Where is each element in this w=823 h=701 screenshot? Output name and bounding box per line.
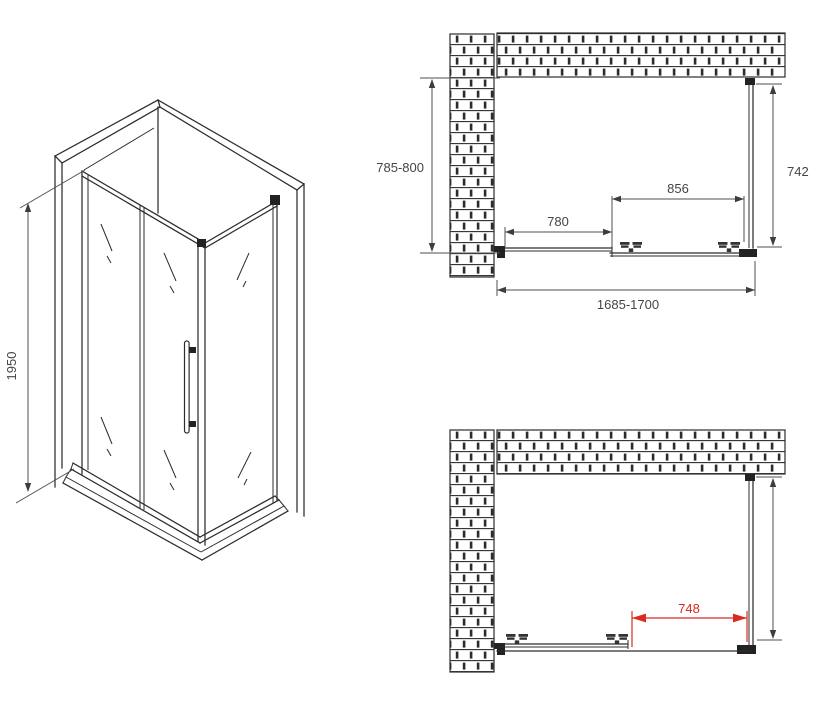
dimension-height-1950: 1950 [4, 170, 85, 503]
wall-bracket [494, 246, 505, 252]
side-panel-dimension-label: 742 [787, 164, 809, 179]
opening-dimension-label: 748 [678, 601, 700, 616]
door-track-closed [494, 242, 742, 258]
brick-wall-left [450, 34, 494, 277]
brick-wall-top [497, 430, 785, 474]
side-glass-panel [739, 78, 757, 257]
depth-dimension-label: 785-800 [376, 160, 424, 175]
handle-bracket-bottom [189, 421, 196, 427]
roller-assembly-left [620, 242, 642, 252]
wall-profile-top [745, 474, 755, 481]
brick-wall-left [450, 430, 494, 672]
back-walls [55, 100, 304, 516]
door-handle [185, 341, 197, 433]
wall-profile-connector [270, 195, 280, 205]
dimension-overall-width: 1685-1700 [497, 261, 755, 312]
dimension-side-panel: 742 [756, 84, 809, 247]
isometric-view: 1950 [4, 100, 304, 560]
door-panel-dimension-label: 856 [667, 181, 689, 196]
dimension-opening: 748 [632, 601, 747, 647]
dimension-fixed-panel: 780 [505, 214, 612, 247]
roller-assembly-right [718, 242, 740, 252]
dimension-door-panel: 856 [612, 181, 744, 246]
overall-width-dimension-label: 1685-1700 [597, 297, 659, 312]
plan-view-door-open: 748 [450, 430, 785, 672]
fixed-panel-dimension-label: 780 [547, 214, 569, 229]
wall-bracket-foot [497, 649, 505, 655]
handle-bracket-top [189, 347, 196, 353]
wall-profile-top [745, 78, 755, 85]
corner-bracket [737, 645, 756, 654]
height-dimension-label: 1950 [4, 352, 19, 381]
plan-view-door-closed: 785-800 742 856 780 [376, 33, 808, 312]
door-track-open [494, 634, 750, 655]
drawing-svg: 1950 [0, 0, 823, 701]
roller-assembly-right [606, 634, 628, 644]
dimension-side-unlabeled [756, 477, 782, 640]
enclosure-frame [82, 128, 280, 545]
brick-wall-top [497, 33, 785, 77]
technical-drawing-canvas: 1950 [0, 0, 823, 701]
glass-shine-marks [101, 224, 251, 490]
roller-assembly-left [506, 634, 528, 644]
